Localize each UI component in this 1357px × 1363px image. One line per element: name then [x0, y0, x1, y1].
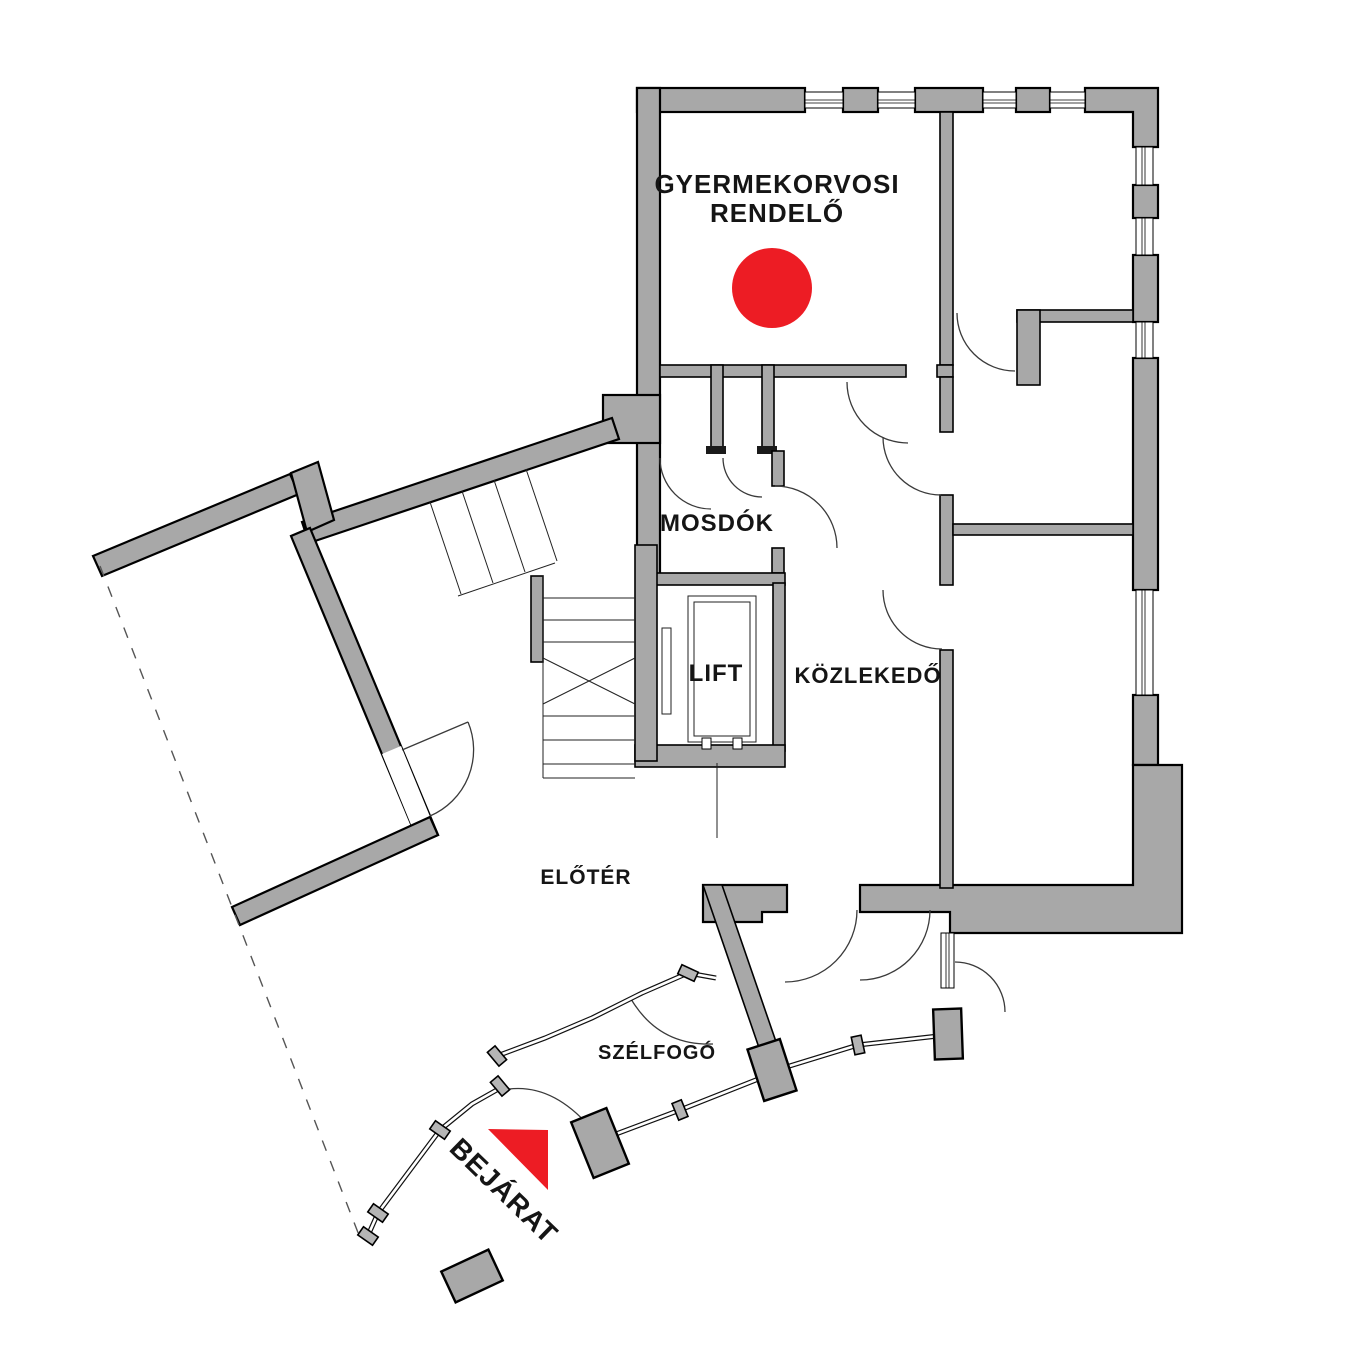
wall-top-mid [915, 88, 983, 112]
partition-cap-1 [706, 446, 726, 454]
wall-west [637, 88, 660, 583]
wall-lift-right [773, 583, 785, 751]
door-vestibule-inner [631, 973, 713, 1044]
door-arc-stall-2 [723, 458, 762, 497]
wall-room2-elbow [1017, 310, 1040, 385]
window [983, 92, 1016, 108]
glass-mullion [487, 1046, 506, 1066]
wall-wing-top [93, 474, 299, 576]
door-arc-foyer-right [860, 910, 930, 980]
wall-mosdok-right-a [772, 451, 784, 486]
wall-right-pillar-1 [1133, 185, 1158, 218]
wall-top-left [637, 88, 805, 112]
door-arc-foyer-left [785, 910, 857, 982]
lift-rail [662, 628, 671, 714]
wall-room1-bottom [660, 365, 906, 377]
corner-post [933, 1009, 963, 1060]
door-arc-stall-1 [660, 458, 711, 509]
vestibule-post [747, 1039, 796, 1101]
wall-stair-northwest-diagonal [302, 418, 619, 543]
wall-divider-a [940, 112, 953, 365]
dashed-boundary-line [100, 566, 362, 1243]
window [1136, 218, 1153, 255]
wall-stall-partition-1 [711, 365, 723, 451]
label-foyer: ELŐTÉR [540, 866, 631, 889]
wall-stair-newel [531, 576, 543, 662]
wall-divider-b [940, 377, 953, 432]
window [805, 92, 843, 108]
door-arc-exterior-southeast [955, 962, 1005, 1012]
wall-top-pillar-1 [843, 88, 878, 112]
wall-right-long [1133, 358, 1158, 590]
wall-bottom-right-L [860, 765, 1182, 933]
door-arc-room1 [847, 382, 908, 443]
wall-top-pillar-2 [1016, 88, 1050, 112]
wall-mosdok-right-b [772, 548, 784, 573]
room-location-marker-icon [732, 248, 812, 328]
glass-mullion [851, 1035, 865, 1055]
wall-divider-stub [937, 365, 953, 377]
label-clinic-line2: RENDELŐ [710, 198, 844, 228]
floor-plan-canvas: GYERMEKORVOSI RENDELŐ MOSDÓK LIFT KÖZLEK… [0, 0, 1357, 1363]
wall-right-block-2 [1133, 695, 1158, 765]
wall-mosdok-bottom [637, 573, 785, 585]
glass-mullion [358, 1227, 378, 1246]
window [878, 92, 915, 108]
label-lift: LIFT [689, 660, 744, 687]
wall-midright [953, 524, 1133, 535]
outdoor-column [441, 1250, 502, 1303]
wall-stair-east [635, 545, 657, 761]
door-arc-washrooms [775, 486, 837, 548]
label-clinic-line1: GYERMEKORVOSI [654, 169, 899, 199]
window [1136, 147, 1153, 185]
wing-walls [93, 462, 438, 925]
lift-shaft [662, 596, 756, 838]
lift-door-mark-1 [702, 738, 711, 749]
entrance-post [571, 1108, 629, 1178]
wall-wing-bottom [232, 817, 438, 925]
door-arc-corridor-lower [883, 590, 942, 649]
wall-top-right-corner [1085, 88, 1158, 147]
door-arc-corridor-upper [883, 437, 941, 495]
lift-door-mark-2 [733, 738, 742, 749]
label-windbreak: SZÉLFOGÓ [598, 1040, 716, 1064]
door-arcs [402, 313, 1015, 1126]
wall-stall-partition-2 [762, 365, 774, 451]
room-labels: GYERMEKORVOSI RENDELŐ MOSDÓK LIFT KÖZLEK… [444, 169, 942, 1250]
label-washrooms: MOSDÓK [660, 509, 774, 537]
glazed-curtain-walls [358, 965, 963, 1303]
door-arc-room2 [957, 313, 1015, 371]
window [1136, 590, 1153, 695]
window [1136, 322, 1153, 358]
wall-wing-jog-block [291, 462, 334, 532]
glass-mullion [672, 1100, 688, 1120]
wall-divider-d [940, 650, 953, 888]
wall-divider-c [940, 495, 953, 585]
window [1050, 92, 1085, 108]
wall-right-block-1 [1133, 255, 1158, 322]
window [941, 933, 954, 988]
windows [805, 92, 1153, 988]
label-corridor: KÖZLEKEDŐ [794, 663, 941, 688]
